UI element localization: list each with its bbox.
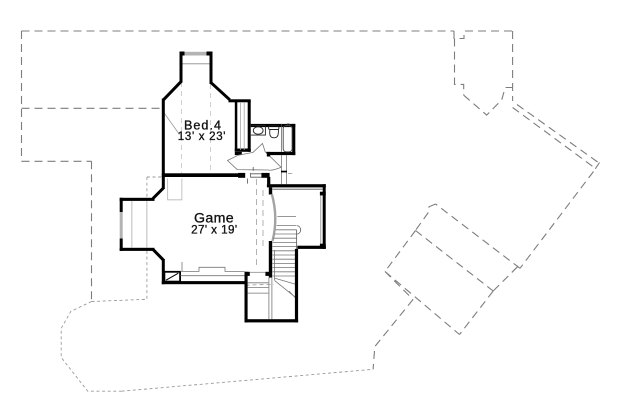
svg-text:13' x 23': 13' x 23' [178,131,226,143]
svg-text:27' x 19': 27' x 19' [191,223,237,236]
